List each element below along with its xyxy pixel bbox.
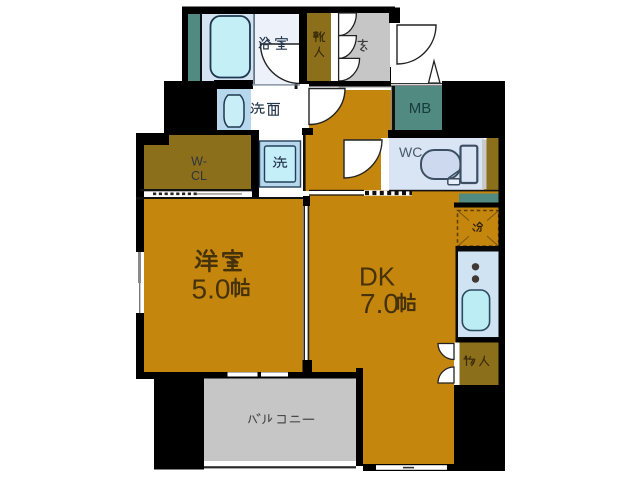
svg-text:CL: CL <box>191 169 207 183</box>
svg-text:WC: WC <box>399 144 422 160</box>
svg-text:W-: W- <box>191 155 207 169</box>
svg-text:DK: DK <box>359 262 396 292</box>
svg-text:MB: MB <box>409 100 432 117</box>
svg-text:7.0: 7.0 <box>360 288 399 319</box>
svg-text:5.0: 5.0 <box>192 274 231 305</box>
